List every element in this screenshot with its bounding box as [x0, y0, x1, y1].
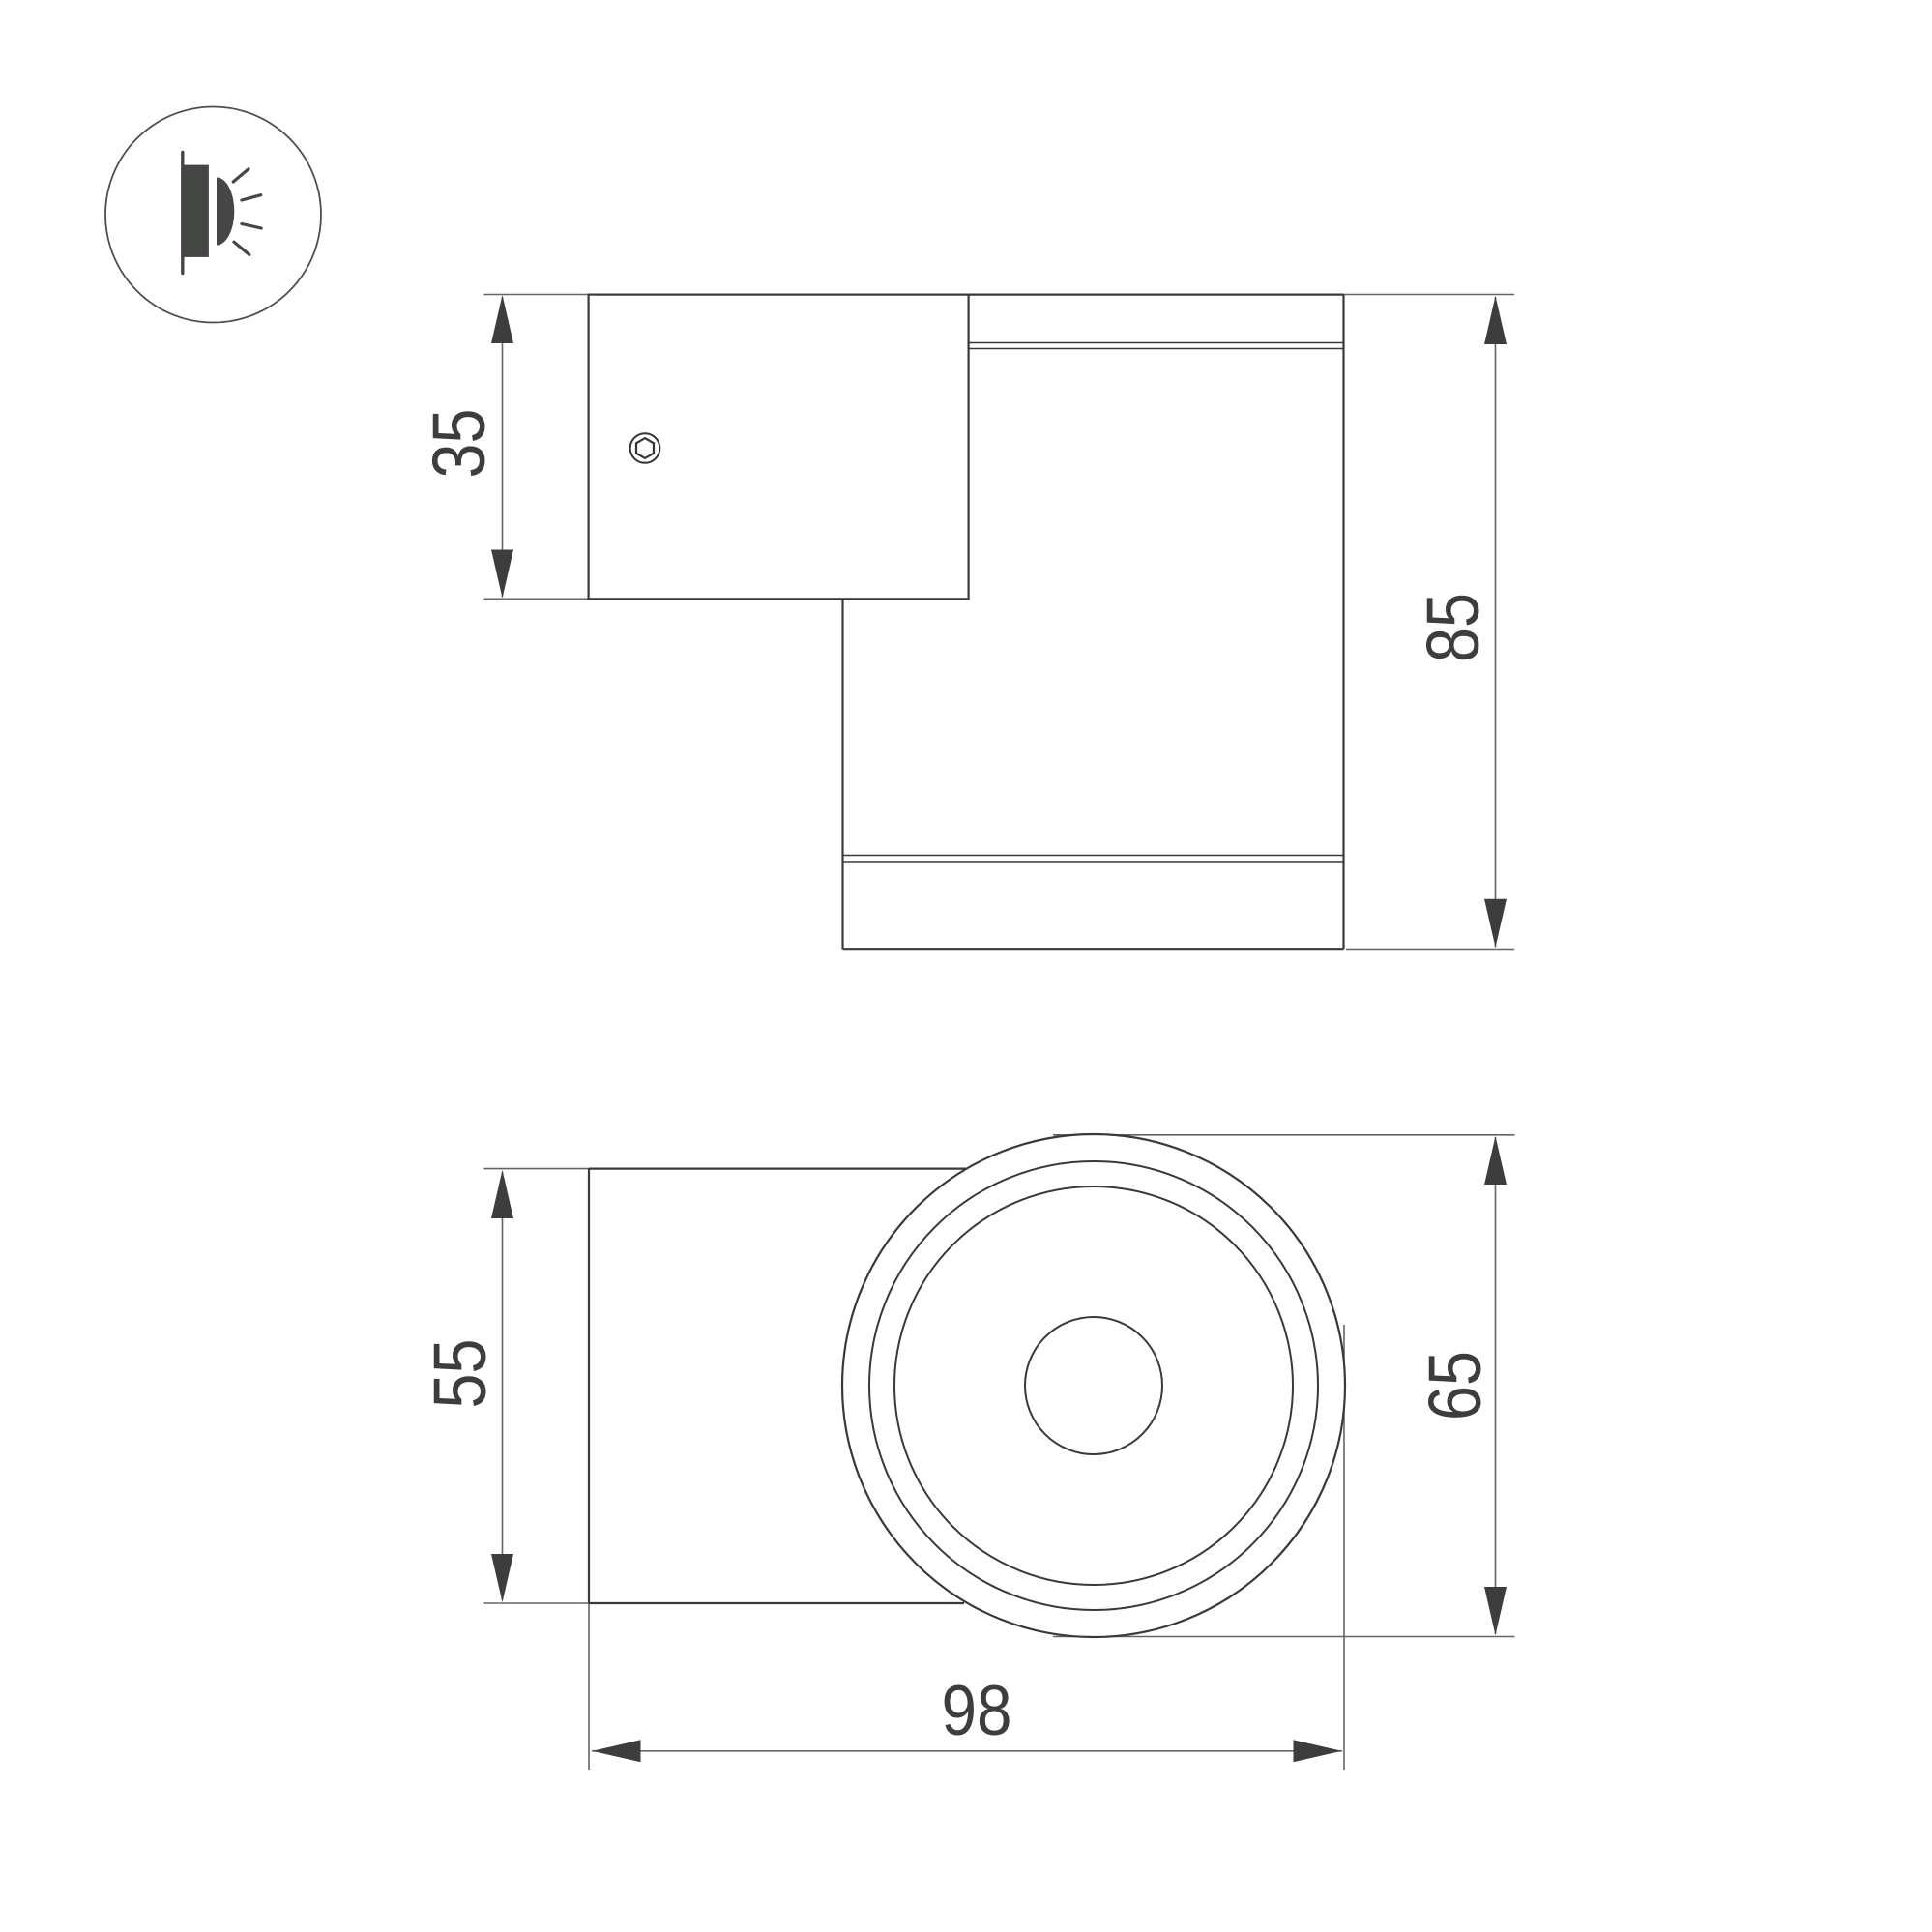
svg-text:85: 85 — [1412, 593, 1495, 662]
svg-text:35: 35 — [418, 409, 501, 479]
svg-text:98: 98 — [942, 1672, 1012, 1750]
svg-text:65: 65 — [1414, 1351, 1497, 1420]
svg-text:55: 55 — [419, 1339, 502, 1409]
